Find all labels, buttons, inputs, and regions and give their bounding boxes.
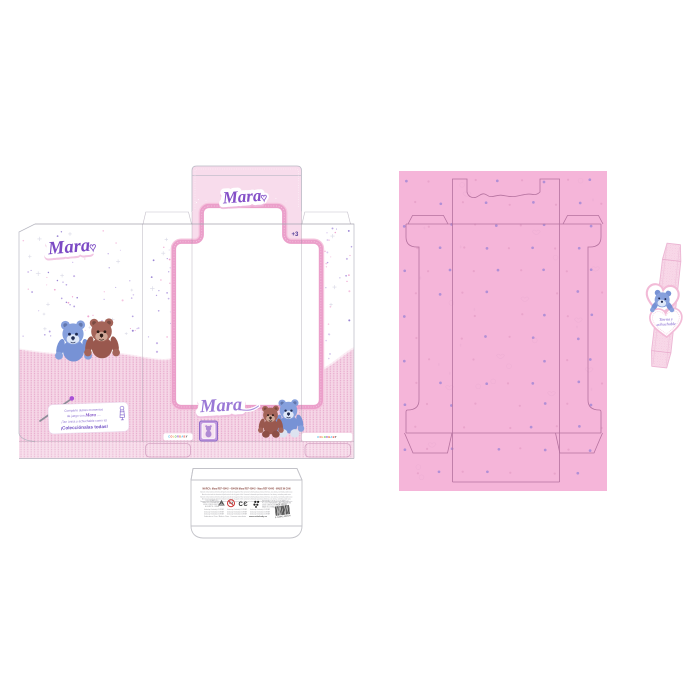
svg-text:Mara: Mara [221, 186, 262, 208]
svg-text:MARCA: Mara REF 43442 · 43442M: MARCA: Mara REF 43442 · 43442M Mara REF … [203, 488, 291, 491]
svg-text:achuchable: achuchable [656, 321, 676, 327]
svg-text:www.colorbaby.es: www.colorbaby.es [249, 515, 268, 518]
svg-text:♥: ♥ [261, 193, 268, 204]
svg-text:COLORBABY: COLORBABY [317, 435, 337, 439]
svg-text:Mara: Mara [198, 395, 242, 417]
svg-text:CЄ: CЄ [239, 502, 249, 508]
svg-text:+3: +3 [292, 232, 300, 238]
svg-text:Mara: Mara [46, 236, 91, 260]
svg-text:03330 CREVILLENTE: 03330 CREVILLENTE [203, 504, 219, 506]
svg-text:COLORBABY: COLORBABY [168, 435, 188, 439]
svg-text:Fabricado en China / Made in C: Fabricado en China / Made in China · Con… [204, 515, 246, 518]
